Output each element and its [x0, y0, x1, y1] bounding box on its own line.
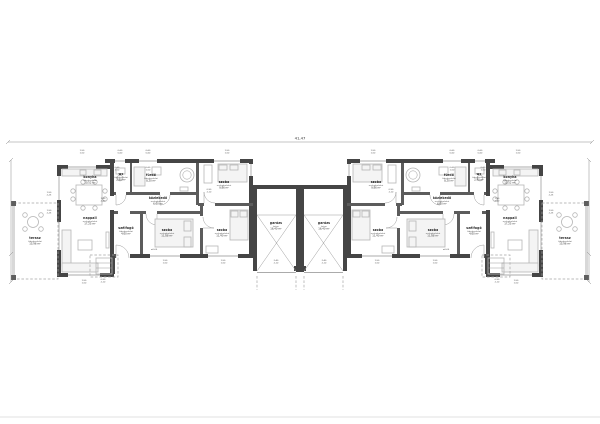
dimension-marker-right: 1,50: [371, 153, 376, 155]
room-area-szoba-deli-right: 11,40 m²: [372, 234, 383, 238]
corner-shower: [406, 168, 420, 182]
room-label-szoba-kozepso-right: szoba: [428, 228, 439, 232]
wall-opening: [116, 192, 126, 195]
terrace-table: [562, 217, 573, 228]
bathtub: [134, 167, 145, 186]
hall-north-wall: [114, 192, 198, 195]
dimension-marker-right: 2,25: [549, 195, 554, 197]
terrace-post: [11, 201, 16, 206]
room-label-garazs-left: garázs: [270, 221, 282, 225]
dining-chair: [71, 197, 75, 201]
corner-shower: [183, 171, 191, 179]
terrace-chair: [573, 227, 578, 232]
room-area-kozlekedo-right: 6,60 m²: [437, 202, 447, 206]
dining-table: [498, 185, 524, 205]
wall-opening: [257, 271, 296, 275]
terrace-edge: [12, 202, 15, 280]
room-label-kozlekedo-left: közlekedő: [149, 196, 167, 200]
garage-north-wall: [253, 185, 300, 189]
dimension-marker-left: 1,50: [82, 283, 87, 285]
room-area-garazs-left: 16,40 m²: [270, 227, 281, 231]
wall-szelfogo-szoba: [457, 214, 460, 254]
dimension-marker-left: 1,50: [221, 263, 226, 265]
wall-szoba2-szoba3: [397, 206, 400, 254]
dimension-marker-right: 0,60: [478, 153, 483, 155]
room-label-szoba-eszaki-right: szoba: [371, 180, 382, 184]
bed: [352, 210, 370, 240]
wall-opening: [397, 216, 400, 228]
dining-chair: [503, 206, 507, 210]
wall-opening: [385, 203, 396, 206]
room-area-konyha-right: 10,52 m²: [504, 181, 515, 185]
wall-opening: [443, 211, 454, 214]
coffee-table: [78, 240, 92, 250]
wall-opening: [430, 192, 440, 195]
dresser: [382, 246, 394, 253]
dining-chair: [493, 189, 497, 193]
dimension-marker-left: 2,10: [207, 192, 212, 194]
wall-opening: [160, 192, 170, 195]
dimension-marker-right: 1,50: [514, 283, 519, 285]
terrace-chair: [39, 227, 44, 232]
floor-plan-svg: 41,47konyhahidegburkolat10,52 m²konyhahi…: [0, 0, 600, 424]
wall-opening: [474, 192, 484, 195]
hall-north-wall: [402, 192, 486, 195]
dimension-marker-right: 1,50: [450, 170, 455, 172]
room-area-terasz-left: 15,96 m²: [29, 242, 40, 246]
dimension-marker-left: 2,25: [47, 213, 52, 215]
dining-chair: [525, 189, 529, 193]
terrace-chair: [23, 213, 28, 218]
corner-shower: [409, 171, 417, 179]
terrace-post: [584, 201, 589, 206]
bedroom-door-swing: [204, 192, 215, 203]
room-area-nappali-left: 17,25 m²: [84, 222, 95, 226]
bathtub: [455, 167, 466, 186]
bedroom-door-swing: [386, 217, 397, 228]
dimension-marker-left: 2,10: [274, 263, 279, 265]
dimension-marker-right: 2,10: [495, 282, 500, 284]
room-label-nappali-left: nappali: [83, 216, 97, 220]
room-label-furdo-left: fürdő: [146, 173, 156, 177]
garage-west-wall: [343, 185, 347, 271]
dimension-marker-left: 1,50: [225, 153, 230, 155]
room-label-konyha-right: konyha: [503, 175, 516, 179]
wall-furdo-szoba: [401, 163, 404, 205]
room-label-wc-left: wc: [119, 172, 124, 176]
porch-wall: [485, 258, 488, 274]
party-wall: [300, 185, 304, 271]
wall-opening: [486, 196, 490, 210]
wall-opening: [110, 196, 114, 210]
dimension-marker-left: 2,25: [47, 195, 52, 197]
dining-chair: [103, 189, 107, 193]
bedroom-door-swing: [203, 217, 214, 228]
wall-opening: [118, 211, 130, 214]
wall-szelfogo-szoba: [140, 214, 143, 254]
room-area-szelfogo-left: 4,60 m²: [121, 232, 131, 236]
wall-wc-furdo: [130, 163, 132, 193]
dimension-marker-left: 1,50: [146, 170, 151, 172]
wall-connector: [486, 159, 490, 167]
room-area-szoba-deli-left: 11,40 m²: [216, 234, 227, 238]
dimension-marker-left: 0,60: [146, 153, 151, 155]
room-area-szoba-kozepso-right: 11,88 m²: [427, 234, 438, 238]
room-label-nappali-right: nappali: [503, 216, 517, 220]
wc-door-swing: [474, 195, 484, 205]
dining-chair: [93, 206, 97, 210]
sofa: [62, 263, 98, 272]
terrace-table: [28, 217, 39, 228]
dimension-marker-right: 1,50: [433, 263, 438, 265]
porch-wall: [112, 258, 115, 274]
dimension-marker-left: 1,50: [115, 170, 120, 172]
room-area-szelfogo-right: 4,60 m²: [469, 232, 479, 236]
room-label-wc-right: wc: [477, 172, 482, 176]
dimension-marker-left: 2,10: [101, 282, 106, 284]
wall-opening: [200, 216, 203, 228]
sofa: [502, 263, 538, 272]
dimension-marker-left: 0,60: [118, 153, 123, 155]
dimension-marker-left: 1,50: [80, 153, 85, 155]
wall-opening: [304, 271, 343, 275]
dimension-marker-left: 2,40: [101, 201, 106, 203]
room-area-szoba-eszaki-left: 9,86 m²: [219, 186, 229, 190]
terrace-chair: [23, 227, 28, 232]
wall-furdo-szoba: [196, 163, 199, 205]
terrace-chair: [573, 213, 578, 218]
room-label-szoba-deli-right: szoba: [373, 228, 384, 232]
dining-chair: [515, 206, 519, 210]
dimension-marker-right: 2,40: [495, 201, 500, 203]
room-label-garazs-right: garázs: [318, 221, 330, 225]
room-label-furdo-right: fürdő: [444, 173, 454, 177]
bath-sink: [412, 187, 420, 191]
dining-table: [76, 185, 102, 205]
dining-chair: [525, 197, 529, 201]
bedroom-door-swing: [385, 192, 396, 203]
bath-sink: [180, 187, 188, 191]
corner-shower: [180, 168, 194, 182]
bed: [230, 210, 248, 240]
room-area-terasz-right: 15,96 m²: [559, 242, 570, 246]
wall-szoba2-szoba3: [200, 206, 203, 254]
room-area-konyha-left: 10,52 m²: [84, 181, 95, 185]
sofa: [529, 230, 538, 266]
wall-opening: [146, 211, 157, 214]
tv-cabinet: [106, 232, 109, 248]
room-label-szelfogo-right: szélfogó: [466, 226, 481, 230]
room-area-furdo-right: 8,20 m²: [444, 179, 454, 183]
room-label-szoba-deli-left: szoba: [217, 228, 228, 232]
dimension-marker-right: ±0,00: [443, 249, 450, 251]
dimension-marker-left: ±0,00: [151, 249, 158, 251]
room-area-kozlekedo-left: 6,60 m²: [153, 202, 163, 206]
terrace-post: [11, 275, 16, 280]
dimension-marker-right: 1,50: [516, 153, 521, 155]
room-label-szelfogo-left: szélfogó: [118, 226, 133, 230]
room-area-nappali-right: 17,25 m²: [504, 222, 515, 226]
dimension-marker-right: 2,10: [322, 263, 327, 265]
wall-opening: [470, 211, 482, 214]
dining-chair: [81, 206, 85, 210]
room-area-garazs-right: 16,40 m²: [318, 227, 329, 231]
terrace-chair: [557, 213, 562, 218]
dimension-marker-right: 0,60: [450, 153, 455, 155]
room-area-wc-left: 2,90 m²: [116, 178, 126, 182]
dining-chair: [71, 189, 75, 193]
dimension-marker-right: 2,10: [389, 192, 394, 194]
entry-steps: [96, 258, 112, 274]
dresser: [206, 246, 218, 253]
room-area-szoba-eszaki-right: 9,86 m²: [371, 186, 381, 190]
terrace-edge: [585, 202, 588, 280]
coffee-table: [508, 240, 522, 250]
sofa: [62, 230, 71, 266]
room-label-kozlekedo-right: közlekedő: [433, 196, 451, 200]
wall-wc-furdo: [468, 163, 470, 193]
room-label-terasz-left: terasz: [29, 236, 41, 240]
terrace-post: [584, 275, 589, 280]
room-label-szoba-kozepso-left: szoba: [162, 228, 173, 232]
dimension-marker-right: 1,50: [375, 263, 380, 265]
wardrobe: [204, 165, 212, 183]
floor-plan-sheet: 41,47konyhahidegburkolat10,52 m²konyhahi…: [0, 0, 600, 424]
room-label-konyha-left: konyha: [83, 175, 96, 179]
room-label-szoba-eszaki-left: szoba: [219, 180, 230, 184]
wall-connector: [110, 159, 114, 167]
terrace-chair: [39, 213, 44, 218]
tv-cabinet: [491, 232, 494, 248]
dimension-marker-left: 1,50: [163, 263, 168, 265]
party-wall: [296, 185, 300, 271]
room-area-wc-right: 2,90 m²: [474, 178, 484, 182]
wardrobe: [388, 165, 396, 183]
terrace-chair: [557, 227, 562, 232]
garage-west-wall: [253, 185, 257, 271]
dimension-marker-right: 1,50: [481, 170, 486, 172]
dimension-marker-right: 2,25: [549, 213, 554, 215]
room-label-terasz-right: terasz: [559, 236, 571, 240]
room-area-szoba-kozepso-left: 11,88 m²: [161, 234, 172, 238]
wall-opening: [204, 203, 215, 206]
wc-door-swing: [116, 195, 126, 205]
room-area-furdo-left: 8,20 m²: [146, 179, 156, 183]
garage-north-wall: [300, 185, 347, 189]
total-length-dimension: 41,47: [295, 136, 306, 141]
